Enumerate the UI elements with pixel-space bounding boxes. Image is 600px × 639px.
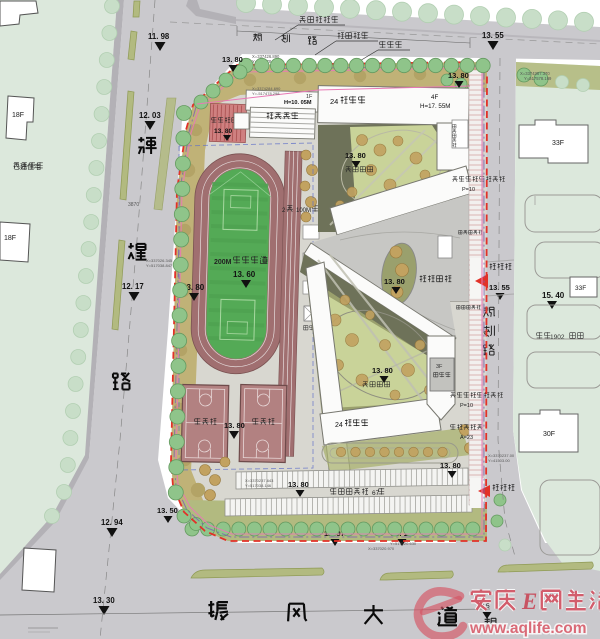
svg-text:13. 80: 13. 80	[222, 55, 243, 64]
svg-text:1902: 1902	[550, 334, 565, 341]
svg-text:13. 80: 13. 80	[214, 128, 232, 135]
svg-text:Y=-517478.298: Y=-517478.298	[252, 91, 280, 96]
svg-text:Y=41503.00: Y=41503.00	[488, 458, 510, 463]
svg-text:18F: 18F	[4, 235, 16, 242]
svg-text:4F: 4F	[431, 94, 438, 101]
svg-text:H=17. 55M: H=17. 55M	[420, 103, 450, 110]
svg-text:13. 80: 13. 80	[384, 277, 405, 286]
svg-text:Y=517578.169: Y=517578.169	[524, 76, 552, 81]
svg-text:13. 80: 13. 80	[448, 71, 469, 80]
svg-text:3870: 3870	[128, 202, 139, 208]
svg-text:13. 55: 13. 55	[489, 283, 510, 292]
svg-text:24: 24	[335, 422, 343, 429]
svg-text:13. 80: 13. 80	[224, 421, 245, 430]
svg-text:12. 94: 12. 94	[101, 518, 123, 527]
svg-text:24: 24	[330, 97, 338, 106]
svg-text:E: E	[521, 589, 537, 614]
svg-text:Y=517038.847: Y=517038.847	[146, 263, 173, 268]
svg-text:15. 40: 15. 40	[542, 291, 565, 300]
svg-text:13. 80: 13. 80	[372, 366, 393, 375]
svg-text:13. 30: 13. 30	[93, 596, 115, 605]
svg-text:13. 80: 13. 80	[288, 480, 309, 489]
svg-text:3F: 3F	[436, 364, 443, 370]
svg-text:Y=517038.146: Y=517038.146	[245, 483, 272, 488]
svg-text:12. 17: 12. 17	[122, 282, 144, 291]
svg-text:11. 98: 11. 98	[148, 32, 170, 41]
svg-text:www.aqlife.com: www.aqlife.com	[469, 620, 587, 637]
svg-text:P=10: P=10	[462, 187, 475, 193]
svg-text:13. 50: 13. 50	[157, 506, 178, 515]
svg-text:13. 60: 13. 60	[233, 270, 256, 279]
svg-text:Y=517020.630: Y=517020.630	[390, 541, 417, 546]
svg-text:13. 55: 13. 55	[482, 31, 504, 40]
svg-text:P=10: P=10	[460, 403, 473, 409]
svg-text:12. 03: 12. 03	[139, 111, 161, 120]
svg-text:33F: 33F	[552, 140, 564, 147]
svg-text:30F: 30F	[543, 431, 555, 438]
svg-text:200M: 200M	[214, 259, 232, 266]
svg-text:13. 80: 13. 80	[440, 461, 461, 470]
svg-text:18F: 18F	[12, 112, 24, 119]
svg-text:H=10. 05M: H=10. 05M	[284, 100, 312, 106]
svg-text:13. 80: 13. 80	[345, 151, 366, 160]
svg-text:A=23: A=23	[460, 435, 473, 441]
svg-text:X=337020.970: X=337020.970	[368, 546, 395, 551]
svg-text:33F: 33F	[575, 285, 586, 292]
svg-text:67: 67	[372, 490, 380, 497]
